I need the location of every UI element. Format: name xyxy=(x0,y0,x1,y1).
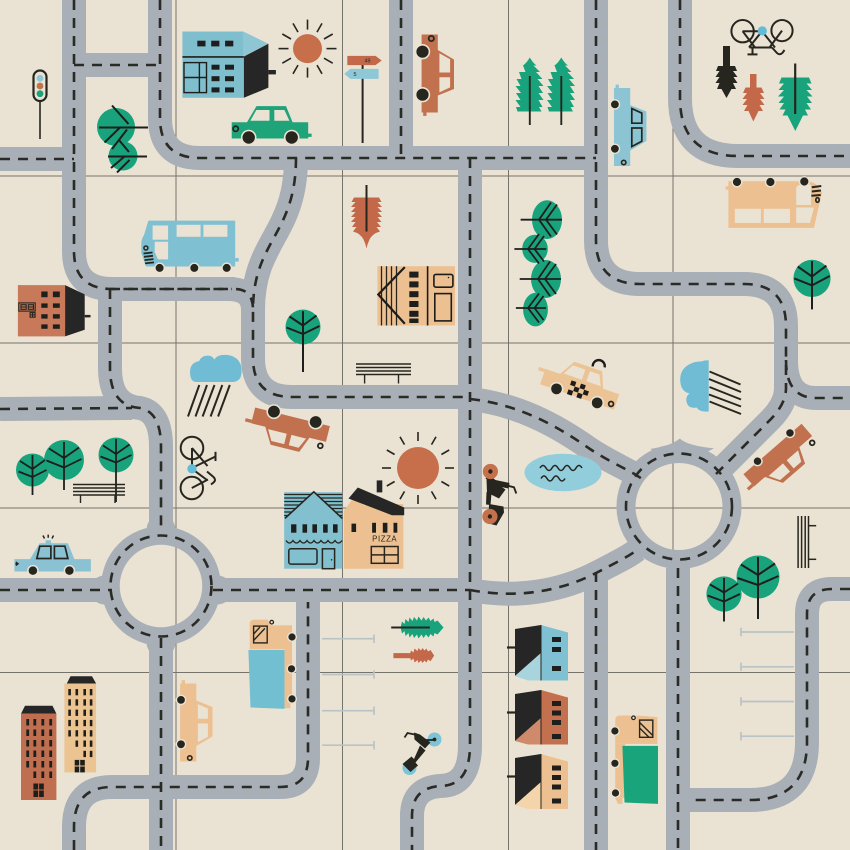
svg-text:PIZZA: PIZZA xyxy=(372,535,397,544)
svg-text:49: 49 xyxy=(365,58,371,64)
svg-text:5: 5 xyxy=(354,72,357,78)
